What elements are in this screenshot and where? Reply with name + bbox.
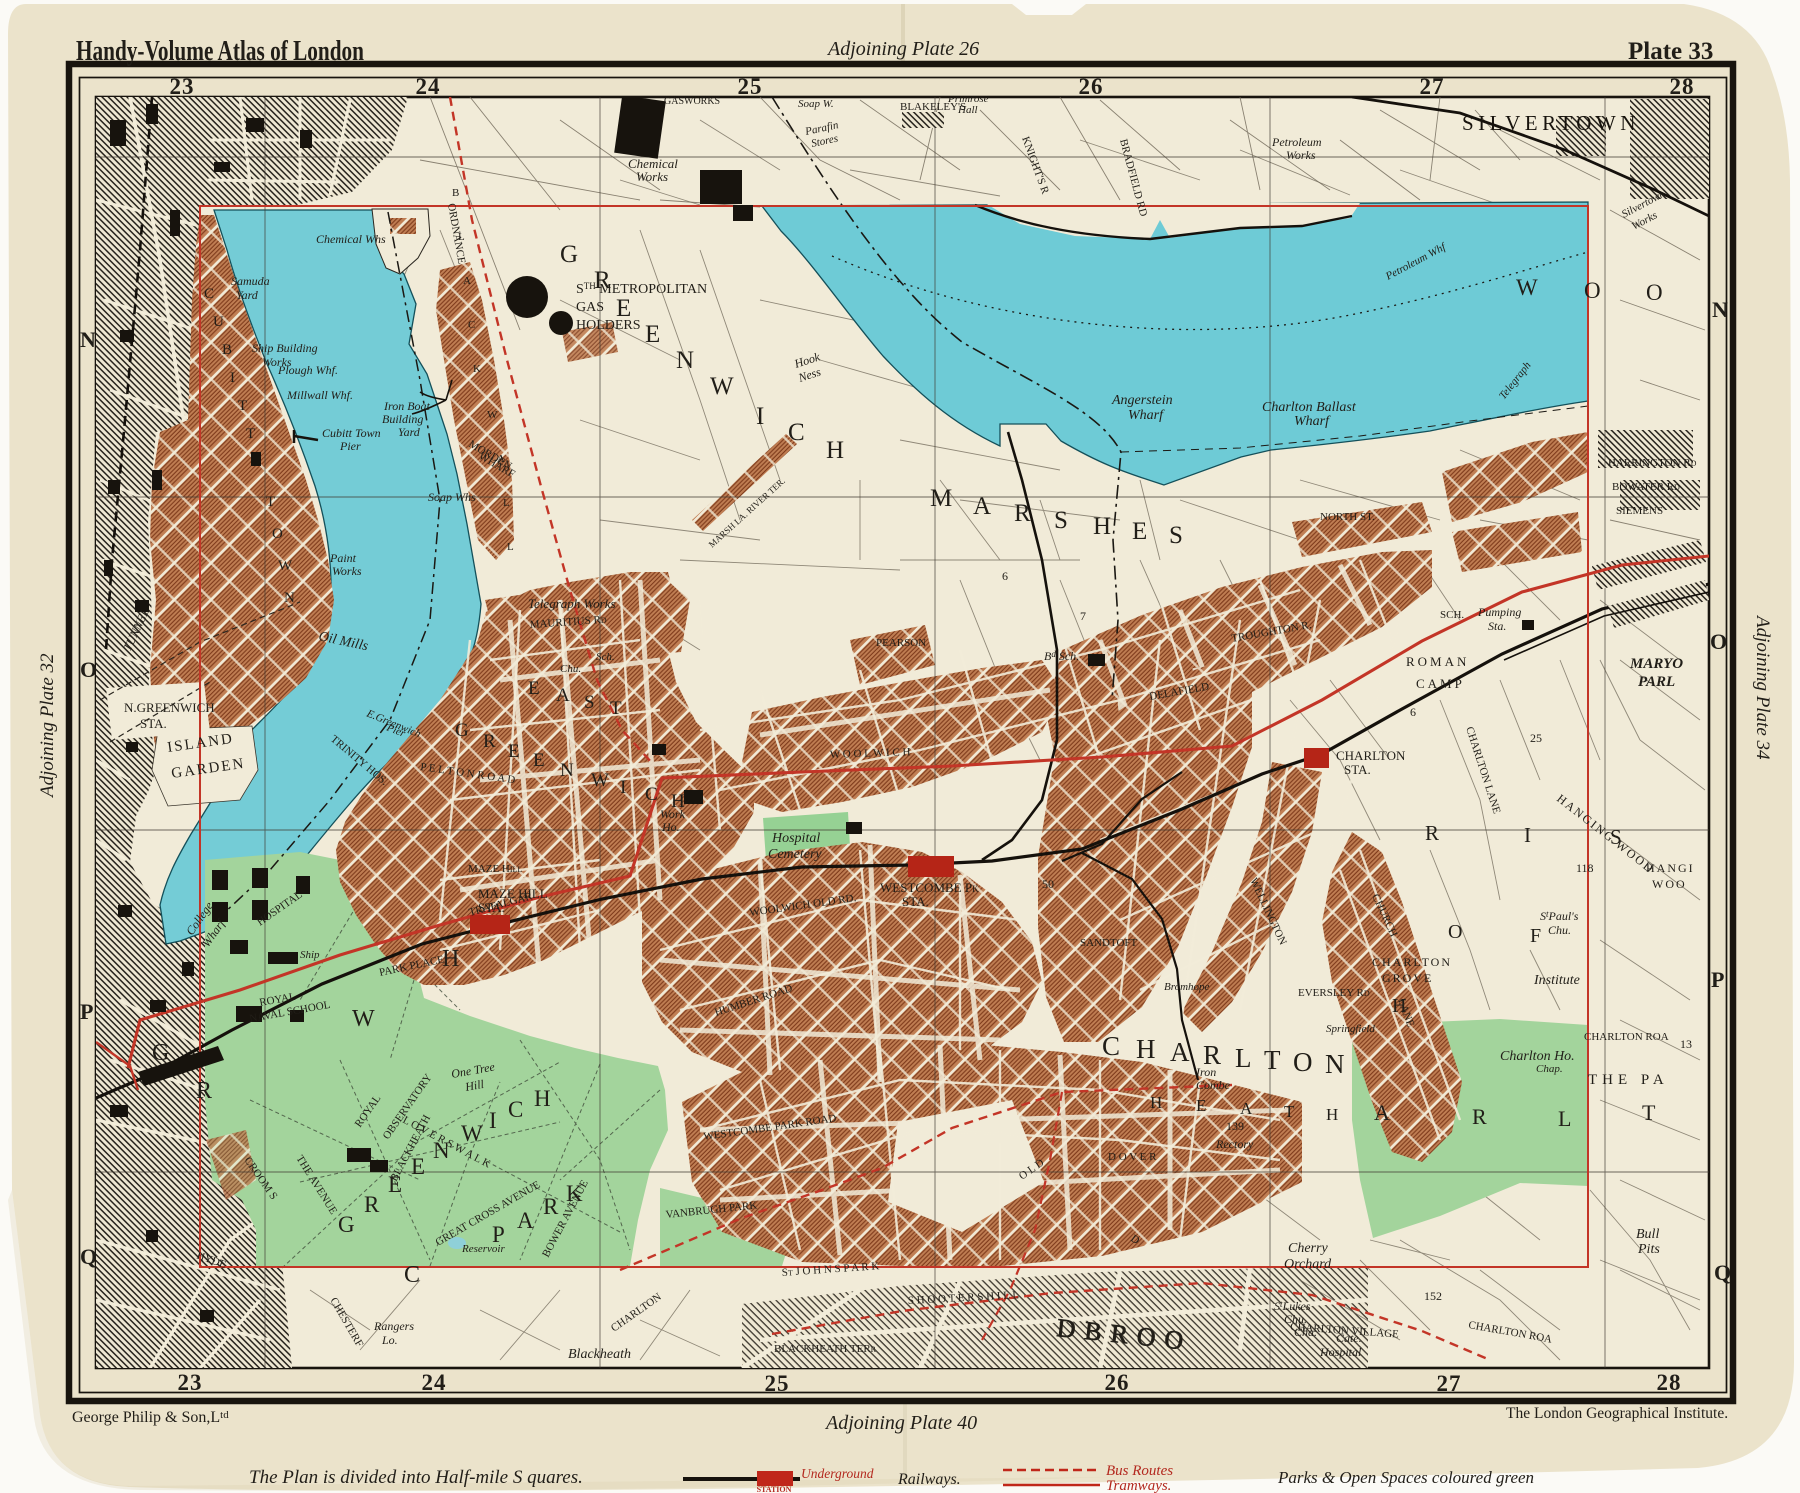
svg-text:Bus Routes: Bus Routes: [1106, 1463, 1173, 1479]
svg-text:Tramways.: Tramways.: [1106, 1478, 1171, 1493]
svg-text:ROMAN: ROMAN: [1406, 654, 1469, 669]
svg-text:Parks & Open Spaces coloured g: Parks & Open Spaces coloured green: [1277, 1468, 1534, 1487]
svg-text:PARL: PARL: [1638, 674, 1675, 690]
svg-text:Chu.: Chu.: [560, 663, 581, 675]
svg-text:BLACKHEATH TERR: BLACKHEATH TERR: [774, 1343, 877, 1355]
svg-text:T: T: [238, 398, 247, 414]
svg-text:27: 27: [1437, 1371, 1462, 1396]
svg-text:Rangers: Rangers: [373, 1319, 414, 1333]
svg-text:StPaul's: StPaul's: [1540, 909, 1579, 923]
svg-text:W: W: [278, 558, 293, 574]
svg-text:THE PA: THE PA: [1588, 1072, 1669, 1088]
svg-text:R: R: [364, 1192, 380, 1217]
svg-text:Samuda: Samuda: [231, 274, 270, 288]
svg-text:STA.: STA.: [902, 894, 929, 909]
svg-text:W: W: [487, 409, 498, 421]
svg-text:GAS: GAS: [576, 300, 604, 315]
svg-text:Adjoining Plate 32: Adjoining Plate 32: [37, 653, 58, 799]
svg-text:A: A: [1240, 1099, 1253, 1118]
svg-text:Telegraph Works: Telegraph Works: [528, 596, 616, 611]
svg-text:24: 24: [416, 74, 441, 99]
svg-text:Q: Q: [1714, 1260, 1731, 1285]
svg-text:Plough Whf.: Plough Whf.: [277, 363, 338, 377]
svg-text:Blackheath: Blackheath: [568, 1347, 631, 1362]
svg-text:Cemetery: Cemetery: [768, 847, 822, 862]
svg-text:Yard: Yard: [398, 425, 421, 439]
svg-text:L: L: [1235, 1043, 1252, 1073]
svg-text:H: H: [1150, 1093, 1162, 1112]
svg-text:N: N: [1712, 297, 1728, 322]
svg-text:24: 24: [422, 1370, 447, 1395]
svg-text:NORTH ST.: NORTH ST.: [1320, 511, 1375, 523]
svg-text:R: R: [1472, 1104, 1487, 1129]
svg-text:O: O: [1646, 280, 1663, 305]
svg-text:R: R: [483, 731, 496, 752]
svg-text:O: O: [1710, 629, 1727, 654]
svg-text:GROVE: GROVE: [1382, 971, 1433, 985]
svg-text:C: C: [788, 419, 805, 446]
svg-text:G: G: [338, 1212, 355, 1237]
svg-text:C: C: [404, 1262, 420, 1288]
svg-text:139: 139: [1226, 1119, 1244, 1133]
svg-text:R: R: [196, 1078, 212, 1104]
svg-text:N: N: [560, 760, 574, 781]
svg-text:O: O: [1293, 1047, 1313, 1077]
svg-text:I: I: [489, 1108, 497, 1133]
svg-text:C: C: [1102, 1031, 1120, 1061]
svg-text:Pits: Pits: [1637, 1242, 1660, 1257]
svg-text:Railways.: Railways.: [897, 1471, 961, 1488]
svg-text:W: W: [1516, 275, 1538, 300]
svg-text:STA.: STA.: [1344, 762, 1371, 777]
svg-text:O: O: [1448, 921, 1462, 943]
svg-text:Bull: Bull: [1636, 1227, 1659, 1242]
svg-text:Adjoining Plate 26: Adjoining Plate 26: [826, 38, 979, 60]
svg-text:Reservoir: Reservoir: [461, 1243, 505, 1255]
svg-text:Paint: Paint: [329, 551, 357, 565]
svg-text:25: 25: [765, 1371, 790, 1396]
svg-text:Chu.: Chu.: [1548, 923, 1571, 937]
svg-text:28: 28: [1657, 1370, 1682, 1395]
svg-text:L: L: [458, 231, 465, 243]
svg-text:Rectory: Rectory: [1215, 1137, 1254, 1151]
svg-text:U: U: [213, 314, 224, 330]
svg-text:P: P: [80, 999, 93, 1024]
svg-text:Angerstein: Angerstein: [1111, 393, 1173, 408]
svg-text:H: H: [1093, 513, 1111, 540]
svg-text:P: P: [1711, 967, 1724, 992]
svg-text:E: E: [1196, 1096, 1206, 1115]
svg-text:E: E: [411, 1154, 425, 1179]
svg-text:Q: Q: [80, 1244, 97, 1269]
svg-text:C: C: [645, 784, 658, 805]
svg-text:S: S: [584, 692, 595, 713]
svg-text:C: C: [468, 319, 475, 331]
svg-text:Ship: Ship: [300, 949, 320, 961]
svg-text:Combe: Combe: [1196, 1078, 1231, 1092]
svg-text:25: 25: [738, 74, 763, 99]
svg-text:SANDTOFT: SANDTOFT: [1080, 937, 1138, 949]
svg-text:S: S: [1169, 522, 1183, 549]
svg-text:N: N: [676, 347, 694, 374]
svg-text:STATION: STATION: [757, 1485, 792, 1493]
svg-text:Petroleum: Petroleum: [1271, 135, 1322, 149]
svg-text:Bromhope: Bromhope: [1164, 981, 1210, 993]
svg-text:R: R: [1425, 821, 1439, 845]
svg-text:I: I: [756, 403, 764, 430]
svg-text:A: A: [1170, 1037, 1190, 1067]
svg-text:R: R: [543, 1194, 559, 1219]
svg-text:25: 25: [1530, 731, 1542, 745]
svg-text:M: M: [930, 485, 952, 512]
svg-text:6: 6: [1002, 569, 1008, 583]
svg-text:6: 6: [1410, 705, 1416, 719]
svg-text:Cha.: Cha.: [1294, 1325, 1317, 1339]
svg-text:Chap.: Chap.: [1536, 1063, 1563, 1075]
svg-text:BLAKELEY'S: BLAKELEY'S: [900, 101, 966, 113]
svg-text:E: E: [645, 321, 660, 348]
svg-text:STH METROPOLITAN: STH METROPOLITAN: [576, 281, 707, 297]
svg-text:CHARLTON ROA: CHARLTON ROA: [1584, 1031, 1669, 1043]
svg-text:CAMP: CAMP: [1416, 676, 1465, 691]
svg-text:G: G: [455, 720, 469, 741]
svg-text:Handy-Volume Atlas of London: Handy-Volume Atlas of London: [76, 35, 364, 67]
svg-text:T: T: [246, 426, 255, 442]
svg-text:L: L: [503, 497, 510, 509]
svg-text:I: I: [620, 777, 626, 798]
svg-text:Adjoining Plate 34: Adjoining Plate 34: [1752, 614, 1773, 760]
svg-text:BOWATER RD: BOWATER RD: [1612, 481, 1680, 493]
svg-text:S: S: [1054, 507, 1068, 534]
svg-text:I: I: [1524, 823, 1531, 847]
svg-text:H: H: [1326, 1105, 1338, 1124]
svg-text:B: B: [222, 342, 232, 358]
svg-text:CHARLTON: CHARLTON: [1336, 748, 1406, 763]
svg-text:26: 26: [1079, 74, 1104, 99]
svg-text:G: G: [152, 1040, 169, 1066]
svg-text:D O V E R: D O V E R: [1108, 1151, 1157, 1163]
svg-text:Charlton Ho.: Charlton Ho.: [1500, 1049, 1575, 1064]
svg-text:Sch.: Sch.: [596, 651, 615, 663]
svg-text:N: N: [284, 590, 295, 606]
svg-text:W: W: [461, 1121, 483, 1146]
svg-text:EVERSLEY RD: EVERSLEY RD: [1298, 987, 1370, 999]
svg-text:T: T: [1284, 1102, 1295, 1121]
svg-text:Cubitt Town: Cubitt Town: [322, 426, 381, 440]
svg-text:STA.: STA.: [140, 716, 167, 731]
svg-text:A: A: [463, 275, 471, 287]
svg-text:A: A: [517, 1208, 534, 1233]
svg-text:Orchard: Orchard: [1284, 1257, 1332, 1272]
svg-text:H: H: [826, 437, 844, 464]
svg-text:SIEMENS: SIEMENS: [1616, 505, 1663, 517]
svg-text:SCH.: SCH.: [1440, 609, 1464, 621]
svg-text:Hospital: Hospital: [1319, 1345, 1362, 1359]
svg-text:T: T: [266, 494, 275, 510]
svg-text:Works: Works: [636, 169, 668, 184]
svg-text:Wharf: Wharf: [1128, 408, 1165, 423]
svg-text:K: K: [473, 363, 481, 375]
svg-text:118: 118: [1576, 861, 1594, 875]
svg-text:F: F: [1530, 925, 1541, 947]
svg-text:Building: Building: [382, 412, 423, 426]
svg-text:Work: Work: [660, 807, 686, 821]
svg-text:R: R: [1014, 500, 1031, 527]
svg-text:CHARLTON: CHARLTON: [1372, 955, 1452, 969]
svg-text:MARYO: MARYO: [1629, 656, 1683, 672]
svg-text:GASWORKS: GASWORKS: [664, 96, 720, 107]
svg-text:Cherry: Cherry: [1288, 1241, 1328, 1256]
svg-text:152: 152: [1424, 1289, 1442, 1303]
svg-text:27: 27: [1420, 74, 1445, 99]
svg-text:W: W: [352, 1006, 375, 1032]
svg-text:HOLDERS: HOLDERS: [576, 318, 641, 333]
svg-text:George Philip & Son,Ltd: George Philip & Son,Ltd: [72, 1409, 229, 1426]
svg-text:A: A: [1374, 1100, 1390, 1125]
svg-text:Millwall Whf.: Millwall Whf.: [286, 388, 353, 402]
svg-text:StLukes: StLukes: [1274, 1299, 1311, 1313]
svg-text:Soap W.: Soap W.: [798, 98, 834, 110]
svg-text:Soap Whs: Soap Whs: [428, 490, 476, 504]
svg-text:H: H: [442, 946, 459, 972]
svg-text:28: 28: [1670, 74, 1695, 99]
svg-text:B: B: [452, 187, 459, 199]
svg-text:L: L: [1558, 1106, 1571, 1131]
svg-text:Bd Sch.: Bd Sch.: [1044, 649, 1079, 663]
svg-text:T: T: [1642, 1100, 1656, 1125]
svg-text:Charlton Ballast: Charlton Ballast: [1262, 400, 1357, 415]
svg-text:Ho.: Ho.: [661, 820, 680, 834]
svg-text:H: H: [1136, 1034, 1156, 1064]
svg-text:Ship Building: Ship Building: [252, 341, 318, 355]
svg-text:23: 23: [178, 1370, 203, 1395]
svg-text:C: C: [508, 1097, 523, 1122]
svg-text:7: 7: [1080, 609, 1086, 623]
svg-text:The Plan is divided into Half-: The Plan is divided into Half-mile S qua…: [249, 1467, 583, 1488]
svg-text:Hospital: Hospital: [771, 831, 820, 846]
svg-text:O: O: [272, 526, 283, 542]
svg-text:W: W: [710, 373, 734, 400]
svg-text:WOO: WOO: [1652, 877, 1687, 891]
svg-text:Yard: Yard: [236, 288, 259, 302]
svg-text:Underground: Underground: [801, 1466, 874, 1481]
svg-text:T: T: [610, 698, 622, 719]
svg-text:N: N: [80, 327, 96, 352]
svg-text:Chemical Whs: Chemical Whs: [316, 232, 386, 246]
svg-text:E: E: [528, 678, 540, 699]
svg-text:O: O: [1584, 278, 1601, 303]
svg-text:MAZE HILL: MAZE HILL: [468, 863, 522, 875]
svg-text:HARRINGTON RD: HARRINGTON RD: [1608, 457, 1697, 469]
svg-text:Adjoining Plate 40: Adjoining Plate 40: [824, 1412, 977, 1434]
svg-text:PEARSON: PEARSON: [876, 637, 926, 649]
svg-text:WESTCOMBE PK: WESTCOMBE PK: [880, 880, 979, 895]
svg-text:Works: Works: [1286, 148, 1316, 162]
svg-text:Lo.: Lo.: [381, 1333, 398, 1347]
svg-text:SILVERTOWN: SILVERTOWN: [1462, 111, 1640, 135]
svg-text:The London Geographical Instit: The London Geographical Institute.: [1506, 1405, 1728, 1422]
svg-text:23: 23: [170, 74, 195, 99]
svg-text:N.GREENWICH: N.GREENWICH: [124, 700, 215, 715]
svg-text:Works: Works: [332, 564, 362, 578]
svg-text:Plate 33: Plate 33: [1628, 38, 1713, 65]
svg-text:Institute: Institute: [1533, 973, 1580, 988]
svg-text:T: T: [1264, 1045, 1281, 1075]
svg-text:26: 26: [1105, 1370, 1130, 1395]
svg-text:L: L: [507, 541, 514, 553]
svg-text:E: E: [1132, 518, 1147, 545]
svg-text:O: O: [80, 657, 97, 682]
svg-text:13: 13: [1680, 1037, 1692, 1051]
svg-text:Sta.: Sta.: [1488, 619, 1506, 633]
svg-text:Chu.: Chu.: [1284, 1312, 1307, 1326]
svg-text:50: 50: [1042, 877, 1054, 891]
svg-text:C: C: [204, 286, 214, 302]
svg-text:Wharf: Wharf: [1294, 414, 1331, 429]
svg-text:Iron: Iron: [1195, 1065, 1216, 1079]
svg-text:I: I: [230, 370, 235, 386]
svg-text:G: G: [560, 241, 578, 268]
svg-text:W: W: [591, 770, 609, 791]
svg-text:Pumping: Pumping: [1477, 605, 1521, 619]
svg-text:Pier: Pier: [339, 439, 361, 453]
svg-text:HANGI: HANGI: [1646, 861, 1695, 875]
svg-text:A: A: [973, 493, 991, 520]
svg-text:N: N: [1325, 1049, 1345, 1079]
svg-text:E: E: [533, 750, 545, 771]
svg-text:E: E: [508, 741, 520, 762]
svg-text:Cate.: Cate.: [1336, 1331, 1362, 1345]
svg-text:A: A: [556, 685, 570, 706]
svg-text:H: H: [534, 1086, 551, 1111]
svg-text:Springfield: Springfield: [1326, 1023, 1375, 1035]
